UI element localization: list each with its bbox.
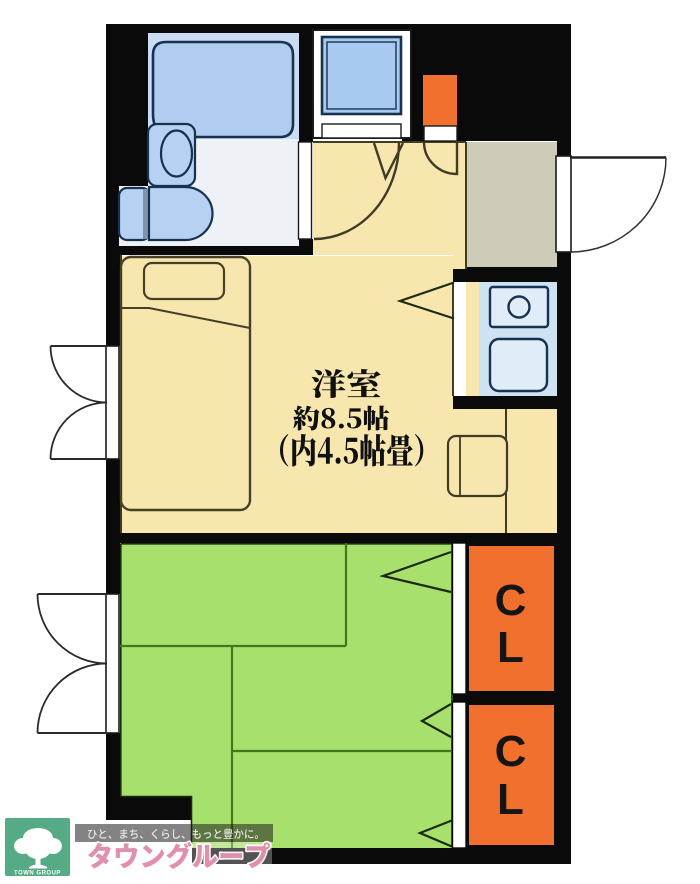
svg-text:C: C — [495, 576, 527, 625]
svg-text:C: C — [495, 727, 527, 776]
svg-text:L: L — [497, 623, 524, 672]
svg-text:L: L — [497, 775, 524, 824]
svg-text:TOWN GROUP: TOWN GROUP — [14, 871, 61, 877]
